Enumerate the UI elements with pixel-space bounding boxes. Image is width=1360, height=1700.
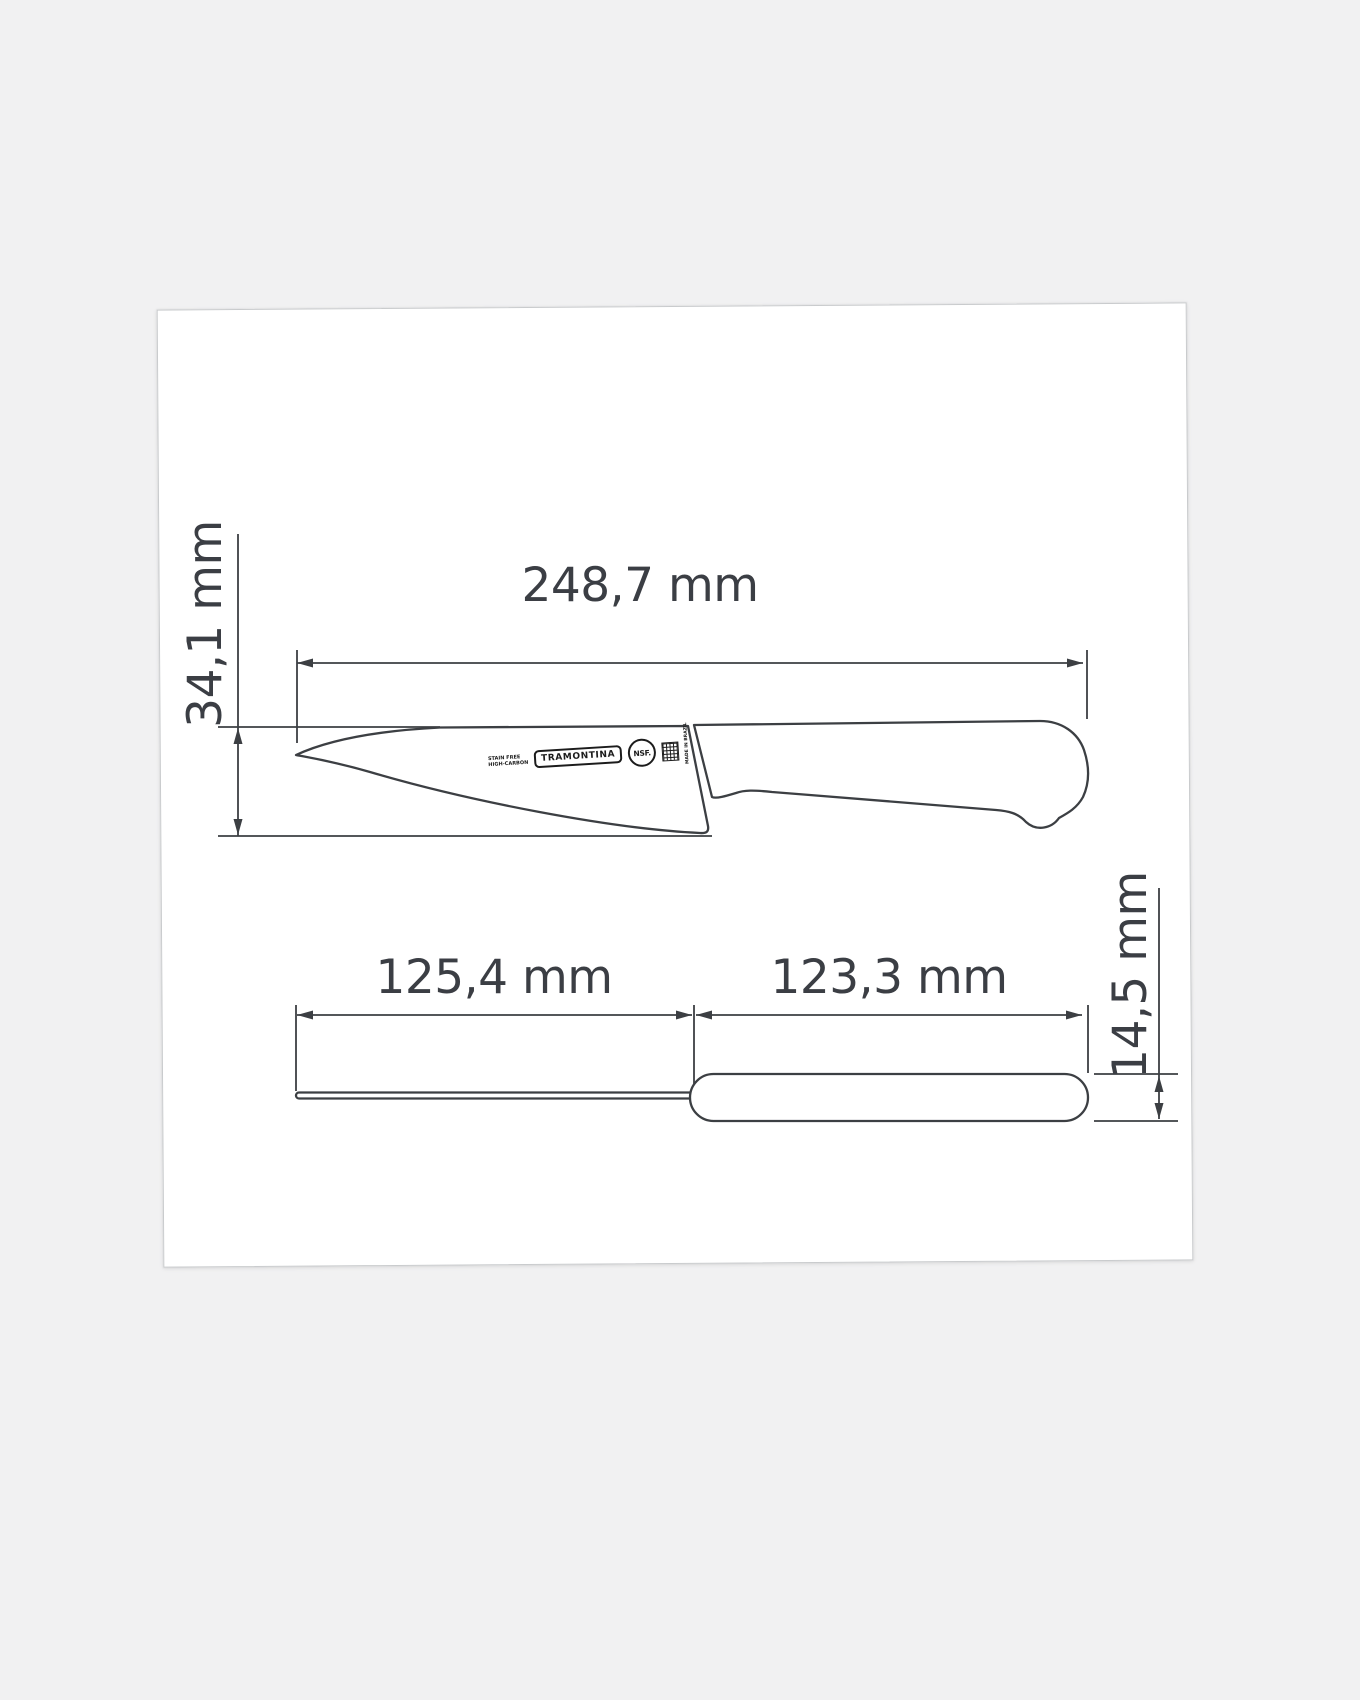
dimension-blade-height [234, 534, 243, 836]
arrow-right-icon [1066, 1011, 1082, 1020]
total-length-label: 248,7 mm [521, 560, 758, 612]
knife-side-view [296, 721, 1088, 833]
arrow-left-icon [297, 659, 313, 668]
blade-height-label: 34,1 mm [180, 520, 232, 728]
dimension-blade-length [297, 1011, 692, 1020]
grid-certification-icon [662, 741, 680, 761]
arrow-up-icon [234, 728, 243, 744]
knife-handle-outline [694, 721, 1088, 828]
knife-handle-spine [690, 1074, 1088, 1121]
dimension-total-length [297, 659, 1083, 668]
steel-type-line2: HIGH-CARBON [488, 760, 528, 768]
knife-technical-drawing [0, 0, 1360, 1700]
knife-spine-view [296, 1074, 1088, 1121]
handle-length-label: 123,3 mm [770, 952, 1007, 1004]
blade-length-label: 125,4 mm [375, 952, 612, 1004]
arrow-left-icon [696, 1011, 712, 1020]
arrow-down-icon [1155, 1103, 1164, 1119]
handle-thickness-label: 14,5 mm [1105, 871, 1157, 1079]
tramontina-logo: TRAMONTINA [534, 745, 623, 768]
knife-dimensions-image: 248,7 mm 34,1 mm 125,4 mm 123,3 mm 14,5 … [0, 0, 1360, 1700]
steel-type-etching: STAIN FREE HIGH-CARBON [488, 754, 529, 768]
arrow-right-icon [1067, 659, 1083, 668]
arrow-down-icon [234, 819, 243, 835]
arrow-left-icon [297, 1011, 313, 1020]
arrow-right-icon [676, 1011, 692, 1020]
dimension-handle-length [696, 1011, 1082, 1020]
knife-tang-spine [296, 1093, 696, 1099]
nsf-certification-mark: NSF. [627, 738, 657, 768]
